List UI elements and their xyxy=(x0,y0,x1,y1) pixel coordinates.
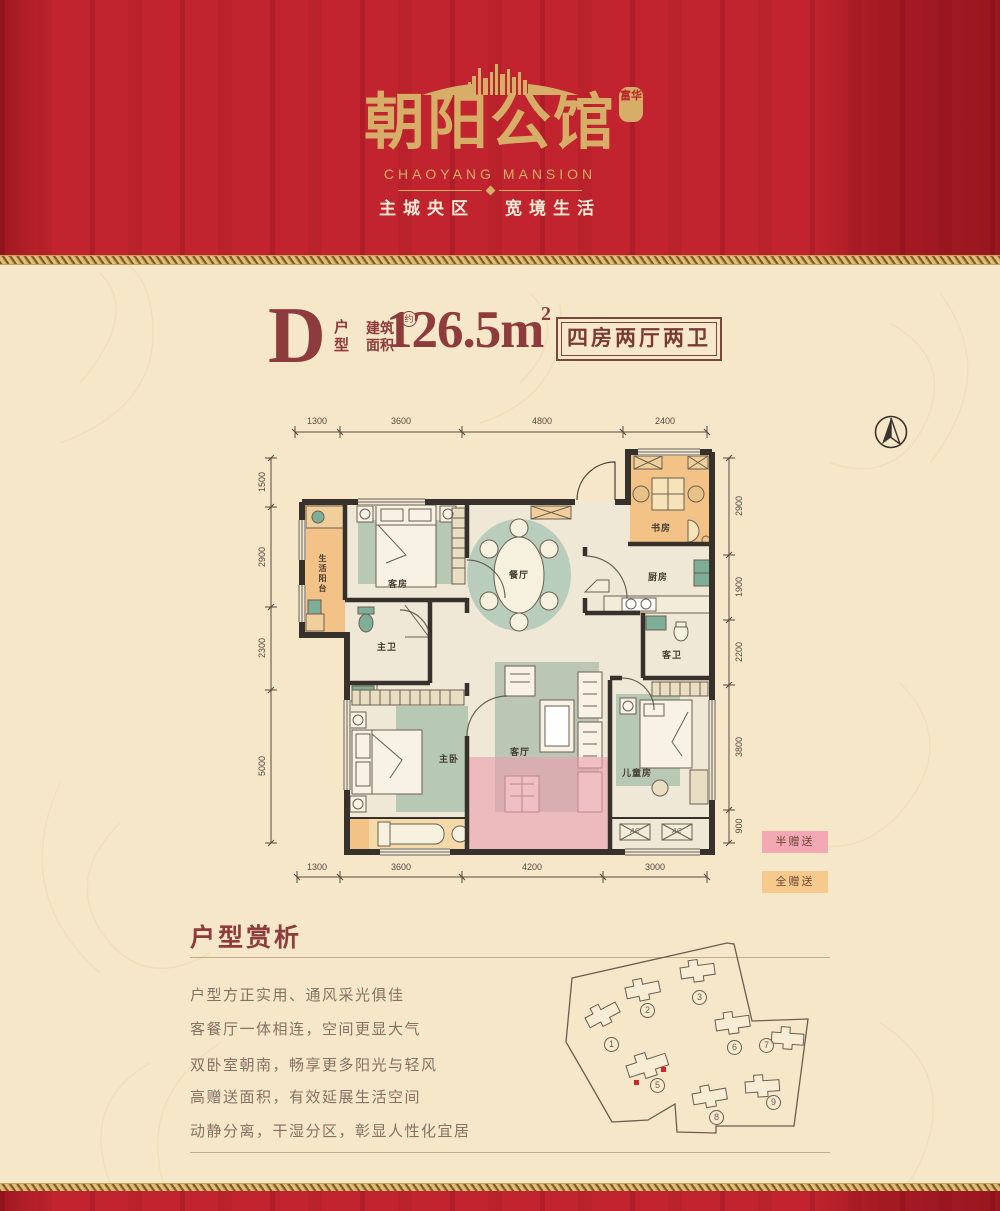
room-label-guest-bath: 客卫 xyxy=(650,649,694,661)
analysis-line-4: 高赠送面积，有效延展生活空间 xyxy=(190,1086,610,1107)
area-superscript: 2 xyxy=(541,303,551,326)
building-number-2: 2 xyxy=(640,1003,655,1018)
building-number-8: 8 xyxy=(709,1110,724,1125)
room-label-kitchen: 厨房 xyxy=(636,571,680,583)
analysis-title: 户型赏析 xyxy=(190,918,302,954)
dim-bottom-3: 4200 xyxy=(512,861,552,873)
brand-seal: 富华 xyxy=(619,87,643,122)
dim-top-3: 4800 xyxy=(522,415,562,427)
siteplan-map xyxy=(548,933,828,1161)
dim-left-3: 2300 xyxy=(256,628,268,668)
dim-top-2: 3600 xyxy=(381,415,421,427)
room-label-study: 书房 xyxy=(639,522,683,534)
poster-page: 朝阳公馆 富华 CHAOYANG MANSION 主城央区宽境生活 D 户型 建… xyxy=(0,0,1000,1211)
ac-label-1: AC xyxy=(621,828,649,835)
analysis-line-5: 动静分离，干湿分区，彰显人性化宜居 xyxy=(190,1120,610,1141)
room-label-master-bed: 主卧 xyxy=(427,753,471,765)
unit-type-label: 户型 xyxy=(334,319,352,355)
gold-braid-border-top xyxy=(0,255,1000,265)
brand-title-en: CHAOYANG MANSION xyxy=(300,166,680,182)
dim-bottom-1: 1300 xyxy=(297,861,337,873)
half-gift-overlay xyxy=(467,757,610,852)
building-number-1: 1 xyxy=(604,1037,619,1052)
dim-left-4: 5000 xyxy=(256,746,268,786)
room-label-kids: 儿童房 xyxy=(615,767,659,779)
analysis-line-3: 双卧室朝南，畅享更多阳光与轻风 xyxy=(190,1054,610,1075)
room-label-guest-room: 客房 xyxy=(376,578,420,590)
entry-cabinet-icon xyxy=(531,506,571,519)
dim-top-4: 2400 xyxy=(645,415,685,427)
dim-right-1: 2900 xyxy=(733,486,745,526)
building-number-5: 5 xyxy=(650,1078,665,1093)
room-count-badge: 四房两厅两卫 xyxy=(556,317,722,361)
room-label-master-bath: 主卫 xyxy=(365,641,409,653)
unit-letter: D xyxy=(268,296,326,376)
slogan-left: 主城央区 xyxy=(379,199,475,218)
analysis-line-1: 户型方正实用、通风采光俱佳 xyxy=(190,984,610,1005)
room-label-dining: 餐厅 xyxy=(497,569,541,581)
footer-banner xyxy=(0,1191,1000,1211)
compass-icon xyxy=(872,413,910,451)
dim-right-3: 2200 xyxy=(733,632,745,672)
building-number-7: 7 xyxy=(759,1038,774,1053)
dim-bottom-2: 3600 xyxy=(381,861,421,873)
ac-label-2: AC xyxy=(663,828,691,835)
floorplan-drawing xyxy=(240,413,770,913)
analysis-line-2: 客餐厅一体相连，空间更显大气 xyxy=(190,1018,610,1039)
slogan-right: 宽境生活 xyxy=(505,199,601,218)
room-label-living: 客厅 xyxy=(498,746,542,758)
dim-right-4: 3800 xyxy=(733,727,745,767)
legend-half-gift: 半赠送 xyxy=(762,831,828,853)
area-value: 126.5m xyxy=(386,300,543,360)
dim-left-1: 1500 xyxy=(256,462,268,502)
building-number-6: 6 xyxy=(727,1040,742,1055)
legend-full-gift: 全赠送 xyxy=(762,871,828,893)
dim-bottom-4: 3000 xyxy=(635,861,675,873)
room-label-balcony: 生活阳台 xyxy=(316,544,328,604)
building-footprints xyxy=(582,957,804,1109)
slogan: 主城央区宽境生活 xyxy=(250,194,730,219)
dim-right-2: 1900 xyxy=(733,567,745,607)
dim-right-5: 900 xyxy=(733,806,745,846)
dim-top-1: 1300 xyxy=(297,415,337,427)
building-number-9: 9 xyxy=(766,1095,781,1110)
room-count-badge-label: 四房两厅两卫 xyxy=(558,319,720,359)
building-number-3: 3 xyxy=(692,990,707,1005)
dim-left-2: 2900 xyxy=(256,537,268,577)
